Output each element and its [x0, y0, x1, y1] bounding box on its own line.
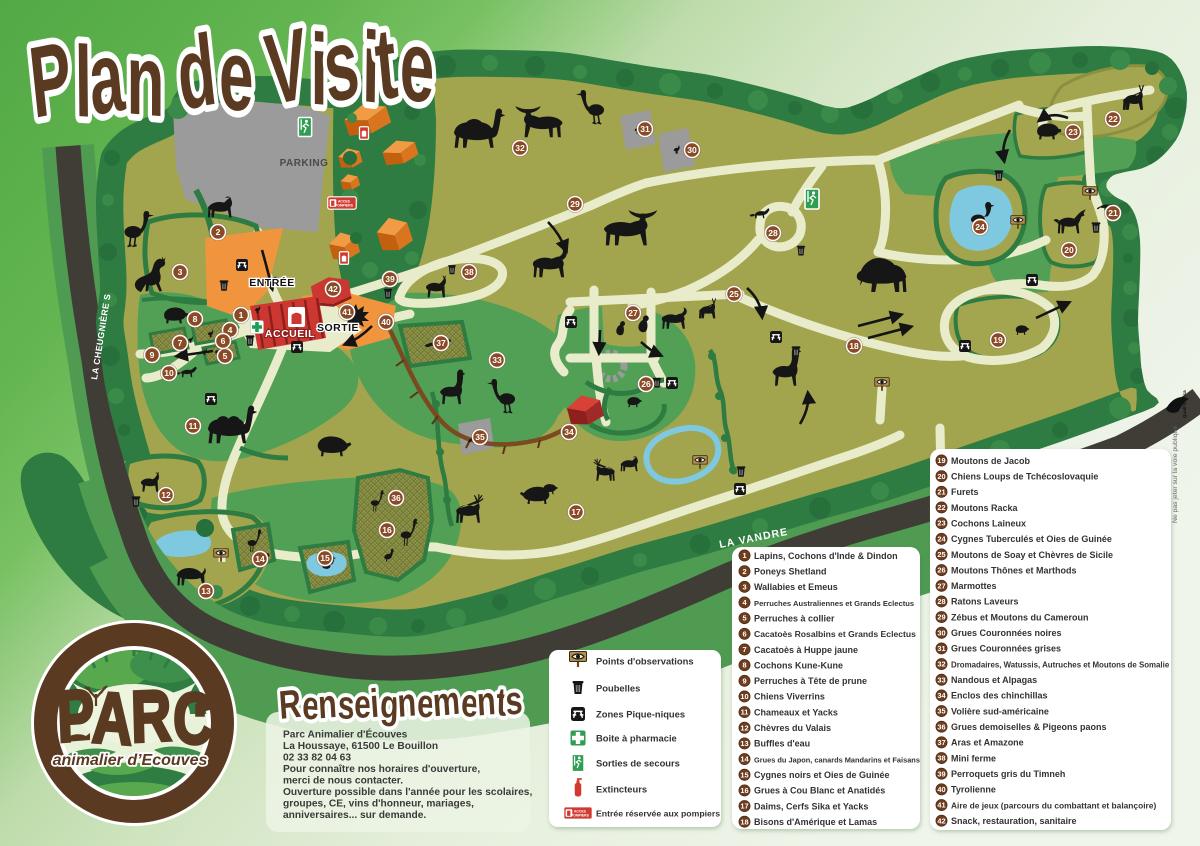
svg-text:3: 3 — [178, 267, 183, 277]
svg-text:40: 40 — [381, 317, 391, 327]
svg-text:Sorties de secours: Sorties de secours — [596, 758, 680, 769]
svg-text:Ouverture possible dans l'anné: Ouverture possible dans l'année pour les… — [283, 787, 532, 798]
svg-text:31: 31 — [640, 124, 650, 134]
svg-text:Grues Couronnées noires: Grues Couronnées noires — [951, 628, 1062, 638]
svg-text:Perruches Australiennes et Gra: Perruches Australiennes et Grands Eclect… — [754, 599, 914, 608]
svg-text:PARKING: PARKING — [280, 158, 329, 169]
svg-text:Buffles d'eau: Buffles d'eau — [754, 739, 810, 749]
svg-text:29: 29 — [570, 199, 580, 209]
svg-text:35: 35 — [937, 707, 945, 716]
svg-text:5: 5 — [223, 351, 228, 361]
svg-text:12: 12 — [740, 723, 748, 732]
svg-text:Zones Pique-niques: Zones Pique-niques — [596, 709, 685, 720]
svg-text:4: 4 — [228, 325, 233, 335]
svg-text:26: 26 — [641, 379, 651, 389]
svg-text:Furets: Furets — [951, 487, 979, 497]
svg-text:Cygnes noirs et Oies de Guinée: Cygnes noirs et Oies de Guinée — [754, 770, 890, 780]
svg-text:Moutons de Soay et Chèvres de: Moutons de Soay et Chèvres de Sicile — [951, 550, 1113, 560]
svg-text:Snack, restauration, sanitaire: Snack, restauration, sanitaire — [951, 816, 1077, 826]
svg-text:Chèvres du Valais: Chèvres du Valais — [754, 723, 831, 733]
svg-text:Cochons Kune-Kune: Cochons Kune-Kune — [754, 660, 843, 670]
svg-text:Chiens Loups de Tchécoslovaqui: Chiens Loups de Tchécoslovaquie — [951, 471, 1098, 481]
svg-text:Cacatoès Rosalbins et Grands E: Cacatoès Rosalbins et Grands Eclectus — [754, 629, 916, 639]
svg-text:8: 8 — [742, 661, 746, 670]
svg-text:ACCUEIL: ACCUEIL — [265, 328, 315, 340]
svg-text:42: 42 — [328, 284, 338, 294]
svg-text:34: 34 — [937, 691, 946, 700]
svg-text:13: 13 — [740, 739, 748, 748]
svg-text:7: 7 — [742, 645, 746, 654]
svg-text:Bisons d'Amérique et Lamas: Bisons d'Amérique et Lamas — [754, 817, 877, 827]
svg-text:Chameaux et Yacks: Chameaux et Yacks — [754, 707, 838, 717]
svg-text:16: 16 — [740, 786, 748, 795]
svg-text:Tyrolienne: Tyrolienne — [951, 785, 996, 795]
svg-text:21: 21 — [937, 487, 945, 496]
svg-text:31: 31 — [937, 644, 945, 653]
svg-text:1: 1 — [742, 551, 746, 560]
svg-text:Grues du Japon, canards Mandar: Grues du Japon, canards Mandarins et Fai… — [754, 755, 920, 764]
svg-text:Extincteurs: Extincteurs — [596, 784, 647, 795]
svg-text:Zébus et Moutons du Cameroun: Zébus et Moutons du Cameroun — [951, 612, 1089, 622]
svg-text:18: 18 — [849, 341, 859, 351]
svg-text:Ne pas jeter sur la voie publi: Ne pas jeter sur la voie publique — [1172, 426, 1179, 523]
svg-text:37: 37 — [436, 338, 446, 348]
svg-text:42: 42 — [937, 816, 945, 825]
svg-text:23: 23 — [1068, 127, 1078, 137]
svg-text:15: 15 — [740, 770, 748, 779]
svg-text:Cochons Laineux: Cochons Laineux — [951, 518, 1026, 528]
svg-text:11: 11 — [188, 421, 197, 431]
svg-text:14: 14 — [740, 755, 749, 764]
svg-text:39: 39 — [937, 769, 945, 778]
svg-text:Entrée réservée aux pompiers: Entrée réservée aux pompiers — [596, 809, 720, 819]
svg-text:2: 2 — [742, 567, 746, 576]
svg-text:Cygnes Tuberculés et Oies de G: Cygnes Tuberculés et Oies de Guinée — [951, 534, 1112, 544]
svg-text:merci de nous contacter.: merci de nous contacter. — [283, 776, 403, 787]
svg-text:25: 25 — [937, 550, 945, 559]
svg-text:15: 15 — [320, 553, 330, 563]
svg-text:Chiens Viverrins: Chiens Viverrins — [754, 692, 825, 702]
svg-text:6: 6 — [742, 629, 746, 638]
svg-text:9: 9 — [150, 350, 155, 360]
svg-text:30: 30 — [687, 145, 697, 155]
svg-text:28: 28 — [768, 228, 778, 238]
svg-text:39: 39 — [385, 274, 395, 284]
svg-text:Grues demoiselles & Pigeons pa: Grues demoiselles & Pigeons paons — [951, 722, 1107, 732]
svg-text:27: 27 — [937, 581, 945, 590]
svg-text:Moutons Racka: Moutons Racka — [951, 503, 1019, 513]
svg-text:Poubelles: Poubelles — [596, 683, 640, 694]
svg-text:28: 28 — [937, 597, 945, 606]
svg-text:Enclos des chinchillas: Enclos des chinchillas — [951, 691, 1048, 701]
svg-text:21: 21 — [1108, 208, 1118, 218]
svg-text:Cacatoès à Huppe jaune: Cacatoès à Huppe jaune — [754, 645, 858, 655]
svg-text:Moutons de Jacob: Moutons de Jacob — [951, 456, 1031, 466]
svg-text:3: 3 — [742, 582, 746, 591]
svg-text:2: 2 — [216, 227, 221, 237]
svg-text:25: 25 — [729, 289, 739, 299]
svg-text:Lapins, Cochons d'Inde & Dindo: Lapins, Cochons d'Inde & Dindon — [754, 551, 898, 561]
svg-text:41: 41 — [342, 307, 352, 317]
svg-text:17: 17 — [571, 507, 581, 517]
svg-text:10: 10 — [164, 368, 174, 378]
svg-text:Perruches à collier: Perruches à collier — [754, 613, 835, 623]
svg-text:5: 5 — [742, 614, 746, 623]
svg-text:11: 11 — [741, 708, 749, 717]
svg-text:17: 17 — [740, 802, 748, 811]
svg-text:ENTRÉE: ENTRÉE — [249, 276, 295, 289]
svg-text:Daims, Cerfs Sika et Yacks: Daims, Cerfs Sika et Yacks — [754, 801, 868, 811]
svg-text:34: 34 — [564, 427, 574, 437]
svg-text:Grues à Cou Blanc et Anatidés: Grues à Cou Blanc et Anatidés — [754, 786, 885, 796]
svg-text:16: 16 — [382, 525, 392, 535]
svg-text:Ratons Laveurs: Ratons Laveurs — [951, 597, 1019, 607]
svg-text:10: 10 — [740, 692, 748, 701]
svg-text:Points d'observations: Points d'observations — [596, 656, 694, 667]
svg-text:18: 18 — [740, 817, 748, 826]
svg-text:Parc Animalier d'Écouves: Parc Animalier d'Écouves — [283, 728, 408, 741]
svg-text:anniversaires... sur demande.: anniversaires... sur demande. — [283, 810, 426, 821]
svg-text:30: 30 — [937, 628, 945, 637]
svg-text:27: 27 — [628, 308, 638, 318]
svg-text:7: 7 — [178, 338, 183, 348]
svg-text:Perroquets gris du Timneh: Perroquets gris du Timneh — [951, 769, 1065, 779]
svg-text:33: 33 — [492, 355, 502, 365]
svg-text:38: 38 — [937, 754, 945, 763]
svg-text:02 33 82 04 63: 02 33 82 04 63 — [283, 753, 351, 764]
svg-text:26: 26 — [937, 566, 945, 575]
svg-text:Volière sud-américaine: Volière sud-américaine — [951, 706, 1049, 716]
svg-text:La Houssaye, 61500 Le Bouillon: La Houssaye, 61500 Le Bouillon — [283, 741, 438, 752]
svg-text:36: 36 — [937, 722, 945, 731]
svg-text:Aras et Amazone: Aras et Amazone — [951, 738, 1024, 748]
svg-text:8: 8 — [193, 314, 198, 324]
svg-text:1: 1 — [239, 310, 244, 320]
svg-text:41: 41 — [937, 801, 945, 810]
svg-text:Boite à pharmacie: Boite à pharmacie — [596, 733, 677, 744]
svg-text:Perruches à Tête de prune: Perruches à Tête de prune — [754, 676, 867, 686]
svg-text:38: 38 — [464, 267, 474, 277]
svg-text:35: 35 — [475, 432, 485, 442]
svg-text:Renseignements: Renseignements — [277, 676, 523, 729]
svg-text:20: 20 — [1064, 245, 1074, 255]
svg-text:23: 23 — [937, 519, 945, 528]
svg-text:Poneys Shetland: Poneys Shetland — [754, 566, 827, 576]
svg-text:22: 22 — [937, 503, 945, 512]
svg-text:37: 37 — [937, 738, 945, 747]
svg-text:24: 24 — [937, 534, 946, 543]
svg-text:Marmottes: Marmottes — [951, 581, 997, 591]
svg-text:Wallabies et Emeus: Wallabies et Emeus — [754, 582, 838, 592]
svg-text:40: 40 — [937, 785, 945, 794]
svg-text:SORTIE: SORTIE — [317, 322, 359, 334]
svg-text:33: 33 — [937, 675, 945, 684]
svg-text:12: 12 — [161, 490, 171, 500]
svg-text:Dromadaires, Watussis, Autruch: Dromadaires, Watussis, Autruches et Mout… — [951, 660, 1170, 669]
svg-text:Aire de jeux (parcours du comb: Aire de jeux (parcours du combattant et … — [951, 800, 1156, 810]
svg-text:13: 13 — [201, 586, 211, 596]
svg-text:animalier d’Ecouves: animalier d’Ecouves — [53, 752, 208, 769]
svg-text:groupes, CE, vins d'honneur, m: groupes, CE, vins d'honneur, mariages, — [283, 799, 474, 810]
svg-text:Pour connaître nos horaires d': Pour connaître nos horaires d'ouverture, — [283, 764, 480, 775]
svg-text:Quali’sAfrica: Quali’sAfrica — [1182, 390, 1187, 418]
svg-text:9: 9 — [742, 676, 746, 685]
svg-text:Moutons Thônes et Marthods: Moutons Thônes et Marthods — [951, 565, 1077, 575]
svg-text:24: 24 — [975, 222, 985, 232]
svg-text:32: 32 — [515, 143, 525, 153]
svg-text:Grues Couronnées grises: Grues Couronnées grises — [951, 644, 1061, 654]
svg-text:6: 6 — [221, 336, 226, 346]
svg-text:19: 19 — [993, 335, 1003, 345]
svg-text:14: 14 — [255, 554, 265, 564]
svg-text:20: 20 — [937, 472, 945, 481]
svg-text:PARC: PARC — [55, 673, 215, 760]
svg-text:36: 36 — [391, 493, 401, 503]
svg-text:22: 22 — [1108, 114, 1118, 124]
svg-text:32: 32 — [937, 660, 945, 669]
svg-text:29: 29 — [937, 613, 945, 622]
svg-text:Nandous et Alpagas: Nandous et Alpagas — [951, 675, 1037, 685]
svg-text:19: 19 — [937, 456, 945, 465]
svg-text:Mini ferme: Mini ferme — [951, 753, 996, 763]
